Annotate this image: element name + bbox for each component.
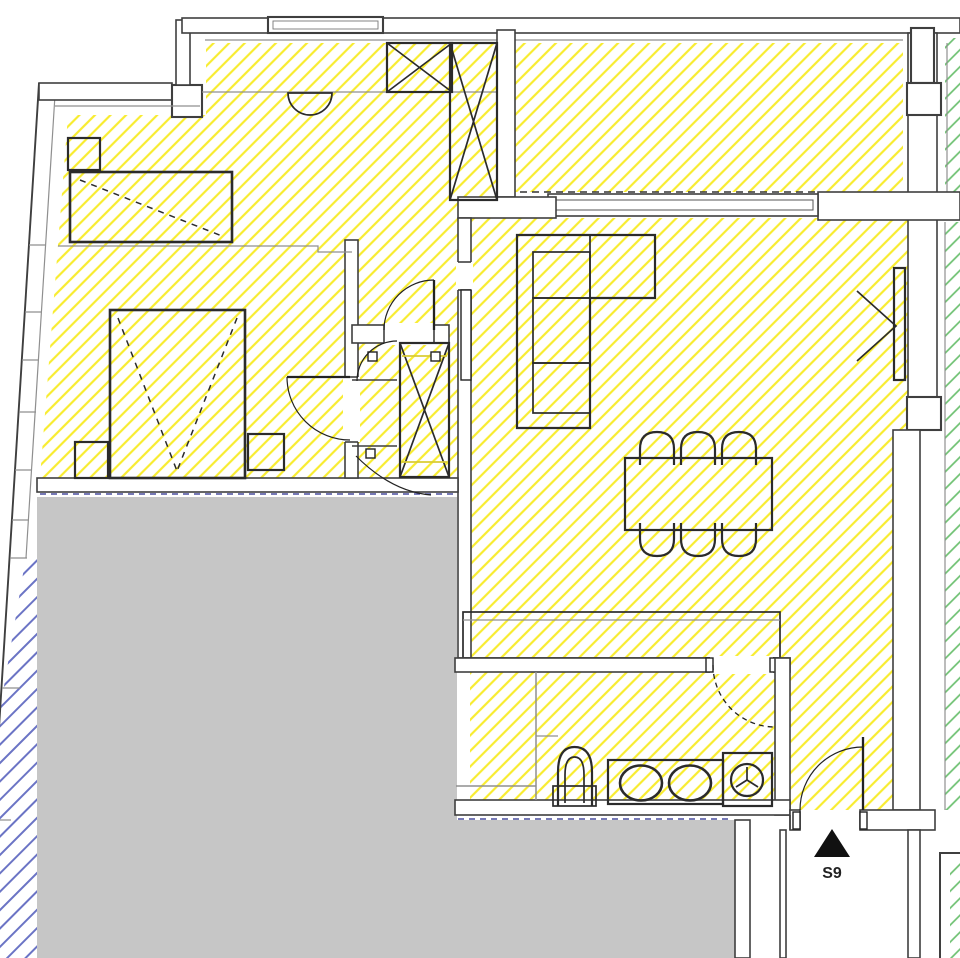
area-fills — [0, 38, 960, 958]
closet-hinge-2 — [431, 352, 440, 361]
wall-balcony-right — [818, 192, 960, 220]
entry-jamb-left — [793, 812, 800, 829]
wall-right-bottom — [908, 830, 920, 958]
floor-plan-drawing: S9 — [0, 0, 960, 958]
wall-right-lower — [893, 430, 920, 810]
wall-terrace-right — [735, 820, 750, 958]
adjacent-unit-strip-bottom — [950, 862, 960, 958]
window-top — [268, 17, 383, 33]
adjacent-unit-strip-mid — [945, 222, 960, 810]
wall-bath-right — [775, 658, 790, 815]
living-door-opening — [456, 262, 473, 290]
balcony-sliding-window — [548, 194, 818, 216]
apartment-left-area — [40, 43, 497, 478]
bedroom-door-opening — [343, 377, 360, 442]
column-right-1 — [911, 28, 934, 83]
wall-balcony-left — [497, 30, 515, 197]
entrance-arrow-icon — [814, 829, 850, 857]
floor-plan-canvas: S9 — [0, 0, 960, 958]
wall-bath-bottom — [455, 800, 790, 815]
closet-hinge-3 — [366, 449, 375, 458]
wall-entry-right — [860, 810, 935, 830]
bath-door-jamb-left — [706, 658, 713, 672]
column-right-3 — [907, 397, 941, 430]
closet-hinge-1 — [368, 352, 377, 361]
balcony-area — [512, 43, 903, 192]
living-door-leaf — [461, 290, 471, 380]
entrance-label: S9 — [822, 865, 842, 882]
wall-top-left — [39, 83, 172, 100]
column-right-2 — [907, 83, 941, 115]
column-top-left — [172, 85, 202, 117]
entry-jamb-right — [860, 812, 867, 829]
bath-door-opening — [710, 656, 773, 674]
wall-walkway — [780, 830, 786, 958]
